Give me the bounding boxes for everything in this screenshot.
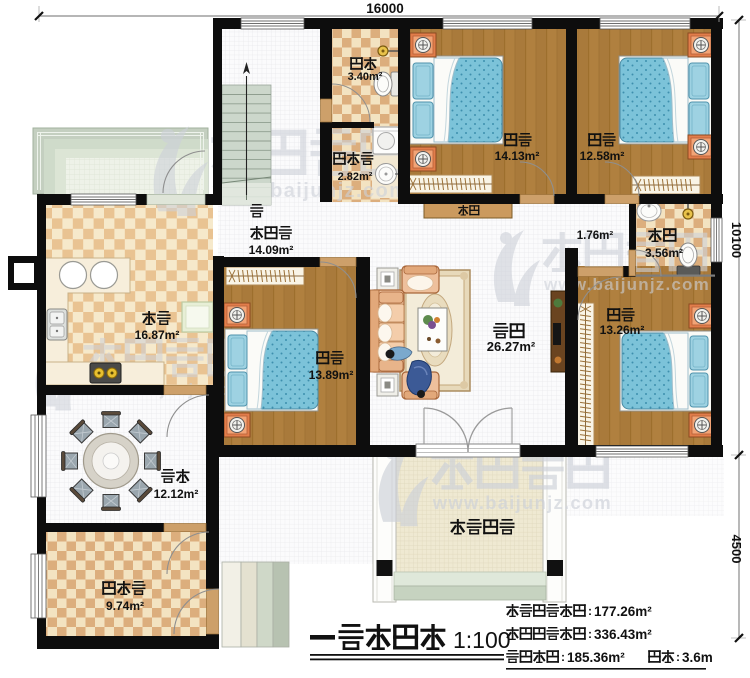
svg-text:12.12m²: 12.12m² <box>154 487 199 501</box>
svg-text:10100: 10100 <box>729 222 744 258</box>
svg-text:3.40m²: 3.40m² <box>348 71 383 83</box>
svg-text:1.76m²: 1.76m² <box>577 230 614 242</box>
svg-text:16000: 16000 <box>366 1 404 16</box>
svg-text:26.27m²: 26.27m² <box>487 339 536 354</box>
svg-text::: : <box>561 650 565 664</box>
svg-text:2.82m²: 2.82m² <box>338 171 373 183</box>
svg-text:9.74m²: 9.74m² <box>106 599 144 613</box>
svg-text:185.36m²: 185.36m² <box>567 650 625 665</box>
svg-text:1:100: 1:100 <box>453 627 511 653</box>
svg-text:13.89m²: 13.89m² <box>309 368 354 382</box>
svg-text:3.6m: 3.6m <box>682 650 713 665</box>
svg-text::: : <box>588 604 592 618</box>
svg-text:16.87m²: 16.87m² <box>135 328 180 342</box>
svg-text:14.09m²: 14.09m² <box>249 243 294 257</box>
svg-text:177.26m²: 177.26m² <box>594 604 652 619</box>
svg-text::: : <box>588 627 592 641</box>
svg-text:4500: 4500 <box>729 535 744 564</box>
svg-text:13.26m²: 13.26m² <box>600 323 645 337</box>
svg-text:3.56m²: 3.56m² <box>645 246 683 260</box>
svg-text:336.43m²: 336.43m² <box>594 627 652 642</box>
svg-text:12.58m²: 12.58m² <box>580 149 625 163</box>
svg-text::: : <box>676 650 680 664</box>
svg-text:14.13m²: 14.13m² <box>495 149 540 163</box>
